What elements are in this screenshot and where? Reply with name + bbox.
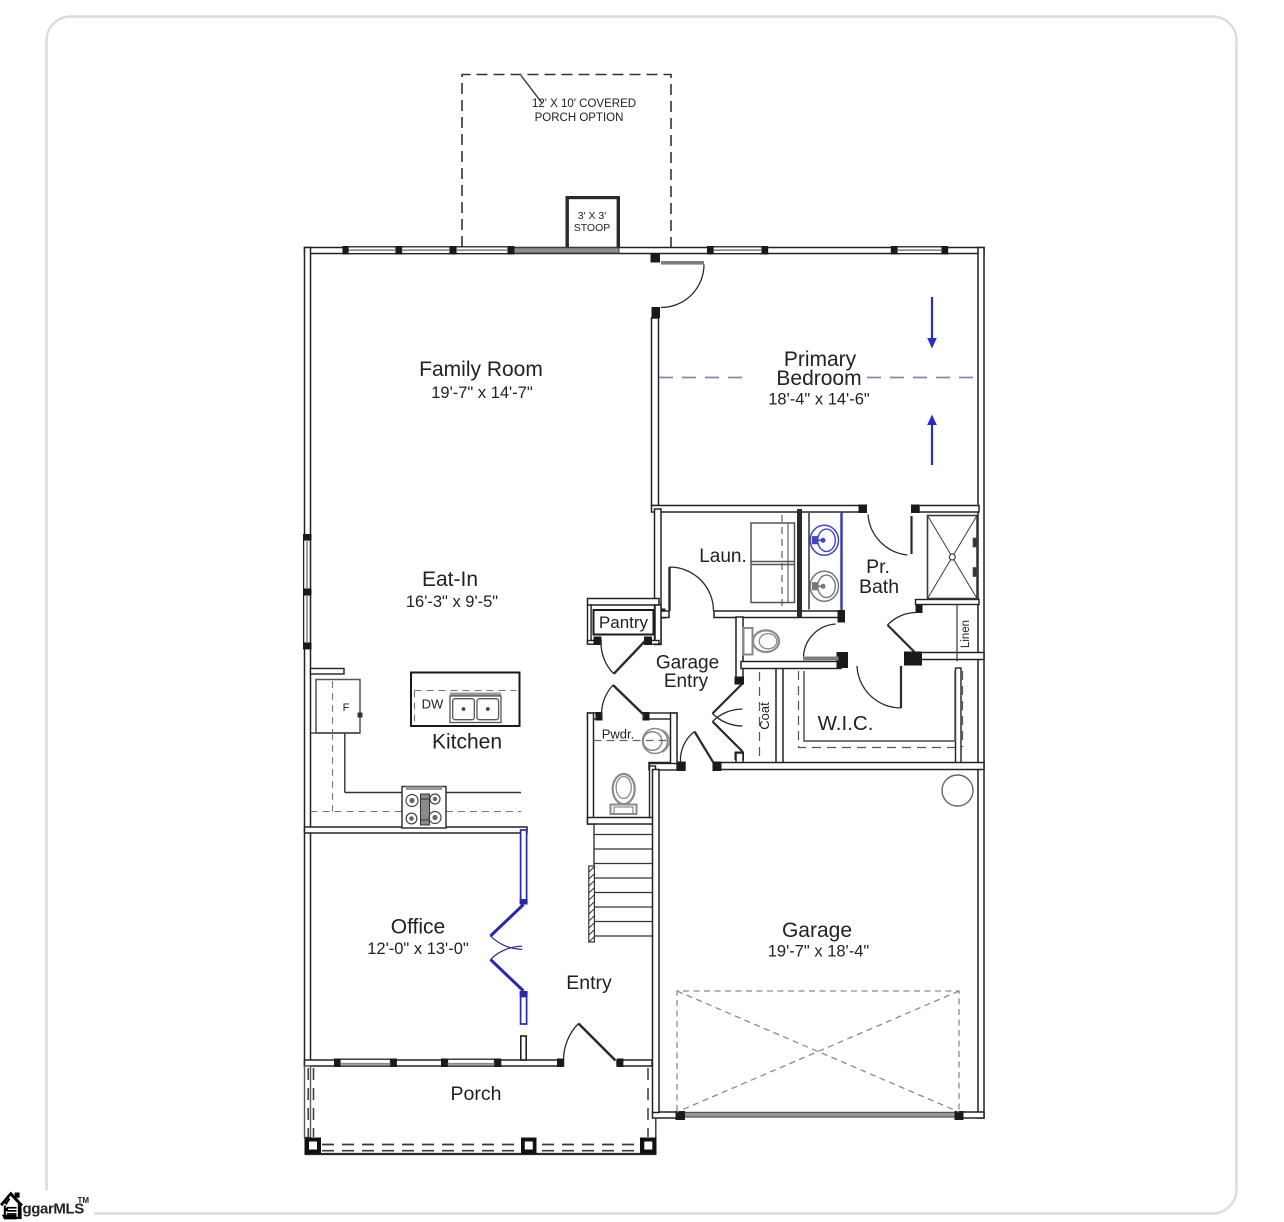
svg-text:Linen: Linen xyxy=(960,620,972,648)
svg-text:Kitchen: Kitchen xyxy=(432,731,502,754)
svg-text:18'-4" x 14'-6": 18'-4" x 14'-6" xyxy=(768,391,870,409)
svg-text:19'-7" x 18'-4": 19'-7" x 18'-4" xyxy=(768,943,870,961)
svg-text:STOOP: STOOP xyxy=(574,222,611,234)
svg-text:Porch: Porch xyxy=(451,1083,502,1105)
svg-text:19'-7" x 14'-7": 19'-7" x 14'-7" xyxy=(431,384,533,402)
svg-text:12' X 10' COVERED: 12' X 10' COVERED xyxy=(532,98,636,110)
svg-text:16'-3" x 9'-5": 16'-3" x 9'-5" xyxy=(406,593,498,611)
svg-text:Family Room: Family Room xyxy=(419,358,543,381)
svg-text:F: F xyxy=(343,702,350,714)
svg-text:Bedroom: Bedroom xyxy=(776,367,861,390)
svg-text:3' X 3': 3' X 3' xyxy=(578,210,607,222)
svg-text:ggarMLS: ggarMLS xyxy=(23,1201,85,1218)
svg-text:DW: DW xyxy=(422,697,444,712)
svg-text:Laun.: Laun. xyxy=(699,546,747,567)
svg-text:Pantry: Pantry xyxy=(599,613,649,632)
svg-text:PORCH OPTION: PORCH OPTION xyxy=(535,112,624,124)
svg-text:Eat-In: Eat-In xyxy=(422,568,478,591)
svg-text:Garage: Garage xyxy=(782,919,852,942)
svg-text:Pr.: Pr. xyxy=(866,556,890,578)
svg-text:12'-0" x 13'-0": 12'-0" x 13'-0" xyxy=(367,940,469,958)
svg-text:TM: TM xyxy=(78,1196,90,1205)
svg-text:Entry: Entry xyxy=(664,671,709,692)
svg-text:Office: Office xyxy=(391,916,445,939)
svg-text:Coat: Coat xyxy=(757,702,772,730)
svg-text:Bath: Bath xyxy=(859,576,899,598)
svg-text:Pwdr.: Pwdr. xyxy=(602,727,635,742)
svg-text:W.I.C.: W.I.C. xyxy=(818,712,874,735)
svg-text:Entry: Entry xyxy=(566,972,612,994)
